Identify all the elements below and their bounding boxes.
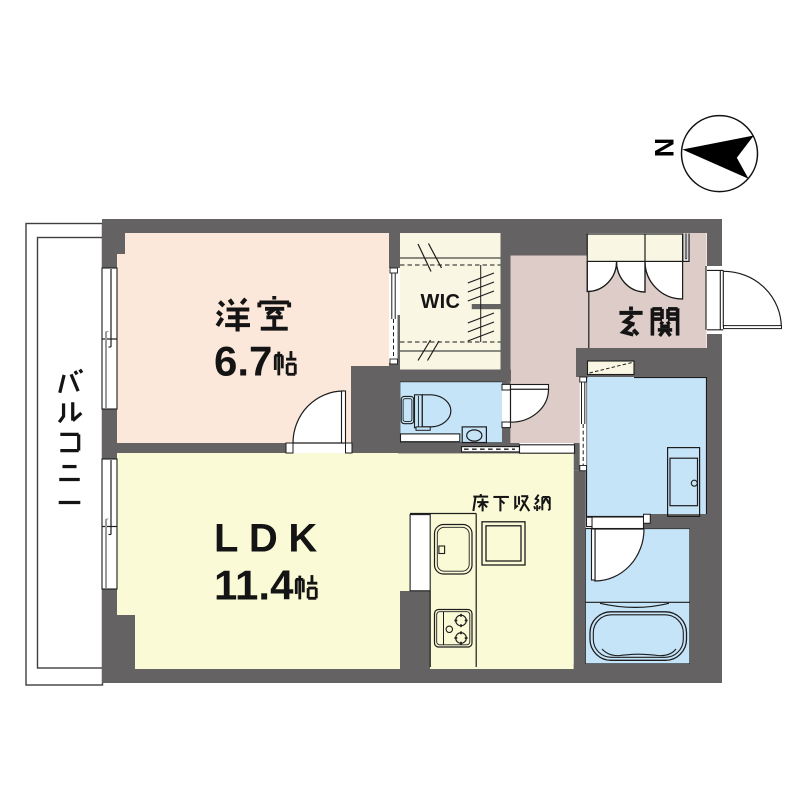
svg-text:6.7: 6.7: [214, 338, 272, 385]
svg-text:11.4: 11.4: [214, 562, 294, 609]
svg-text:N: N: [650, 138, 680, 158]
svg-text:WIC: WIC: [421, 291, 461, 313]
svg-text:LDK: LDK: [214, 517, 328, 561]
